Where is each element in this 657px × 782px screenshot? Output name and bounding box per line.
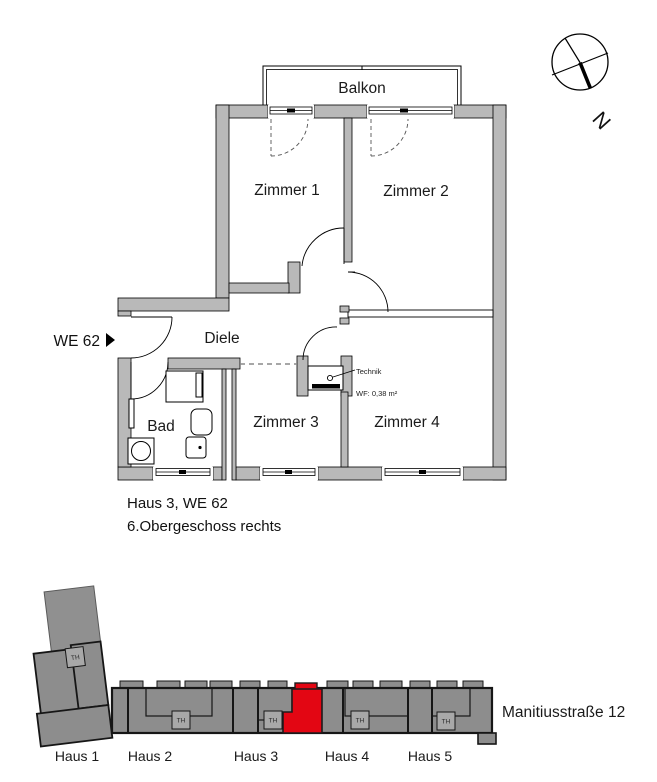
door-arc xyxy=(131,317,172,358)
sink-symbol xyxy=(191,409,212,435)
unit-pointer: WE 62 xyxy=(53,333,115,350)
door-arc xyxy=(371,119,408,156)
house-labels: Haus 1 Haus 2 Haus 3 Haus 4 Haus 5 xyxy=(55,748,453,764)
wall-shaft-right xyxy=(232,369,236,480)
haus-1-wing: TH xyxy=(22,586,112,747)
room-label-zimmer-4: Zimmer 4 xyxy=(374,414,440,431)
row-building: TH TH TH TH xyxy=(112,681,496,744)
window xyxy=(367,105,454,118)
stairwell-label: TH xyxy=(356,718,365,725)
window xyxy=(268,105,314,118)
wall-partition-z3-z4 xyxy=(341,392,348,467)
shower-door-symbol xyxy=(196,373,202,397)
wall-jamb xyxy=(340,318,349,324)
wall-segment xyxy=(314,105,367,118)
room-label-zimmer-3: Zimmer 3 xyxy=(253,414,318,431)
wall-segment xyxy=(493,105,506,480)
house-label-5: Haus 5 xyxy=(408,748,453,764)
wall-segment xyxy=(318,467,382,480)
stairwell-label: TH xyxy=(177,718,186,725)
technik-closet: Technik WF: 0,38 m² xyxy=(308,366,398,398)
window-sash xyxy=(400,109,408,113)
balcony: Balkon xyxy=(263,66,461,106)
floorplan-page: N Balkon xyxy=(0,0,657,782)
room-label-diele: Diele xyxy=(204,330,239,347)
wall-segment xyxy=(463,467,506,480)
technik-area-label: WF: 0,38 m² xyxy=(356,389,398,398)
window xyxy=(260,467,318,480)
wall-bad-top xyxy=(168,358,240,369)
window-sash xyxy=(179,470,186,474)
floorplan-drawing: N Balkon xyxy=(0,0,657,782)
door-arc xyxy=(302,228,344,266)
wall-partition-z1-z2 xyxy=(344,118,352,262)
wall-stub xyxy=(288,262,300,293)
room-label-bad: Bad xyxy=(147,418,175,435)
radiator-symbol xyxy=(129,399,134,428)
arrow-right-icon xyxy=(106,333,115,347)
window xyxy=(153,467,213,480)
caption-line-1: Haus 3, WE 62 xyxy=(127,495,228,512)
wall-segment xyxy=(118,311,131,316)
wall-jamb xyxy=(340,306,349,312)
stairwell-label: TH xyxy=(442,719,451,726)
house-label-3: Haus 3 xyxy=(234,748,279,764)
house-label-2: Haus 2 xyxy=(128,748,173,764)
window-sash xyxy=(285,470,292,474)
door-arc xyxy=(131,362,168,399)
wall-segment xyxy=(213,467,222,480)
wall-shaft-left xyxy=(222,369,226,480)
house-label-1: Haus 1 xyxy=(55,748,100,764)
stairwell-label: TH xyxy=(269,718,278,725)
wall-technik-left xyxy=(297,356,308,396)
house-label-4: Haus 4 xyxy=(325,748,370,764)
caption-line-2: 6.Obergeschoss rechts xyxy=(127,518,281,535)
row-end-step xyxy=(478,733,496,744)
balcony-label: Balkon xyxy=(338,80,385,97)
room-label-zimmer-1: Zimmer 1 xyxy=(254,182,319,199)
door-arc xyxy=(348,272,388,312)
technik-point xyxy=(327,375,332,380)
window-sash xyxy=(419,470,426,474)
wall-segment xyxy=(118,298,229,311)
site-plan: TH xyxy=(22,586,625,764)
door-arc xyxy=(271,119,308,156)
toilet-dot xyxy=(198,446,201,449)
compass-needle-icon xyxy=(580,63,591,89)
door-arc xyxy=(303,327,337,360)
technik-label: Technik xyxy=(356,367,382,376)
doors xyxy=(131,119,408,399)
unit-label: WE 62 xyxy=(53,333,100,350)
technik-band xyxy=(312,384,340,389)
thin-wall-hall-z4 xyxy=(348,310,493,317)
street-label: Manitiusstraße 12 xyxy=(502,704,625,721)
compass: N xyxy=(552,34,615,134)
wall-segment xyxy=(236,467,260,480)
stairwell-label: TH xyxy=(71,654,81,662)
window-sash xyxy=(287,109,295,113)
north-label: N xyxy=(588,108,615,135)
wall-z1-bottom xyxy=(229,283,289,293)
room-label-zimmer-2: Zimmer 2 xyxy=(383,183,448,200)
window xyxy=(382,467,463,480)
wall-segment xyxy=(216,105,229,298)
wall-segment xyxy=(118,467,153,480)
toilet-symbol xyxy=(186,437,206,458)
caption-block: Haus 3, WE 62 6.Obergeschoss rechts xyxy=(127,495,281,535)
compass-needle-tail xyxy=(565,38,580,63)
